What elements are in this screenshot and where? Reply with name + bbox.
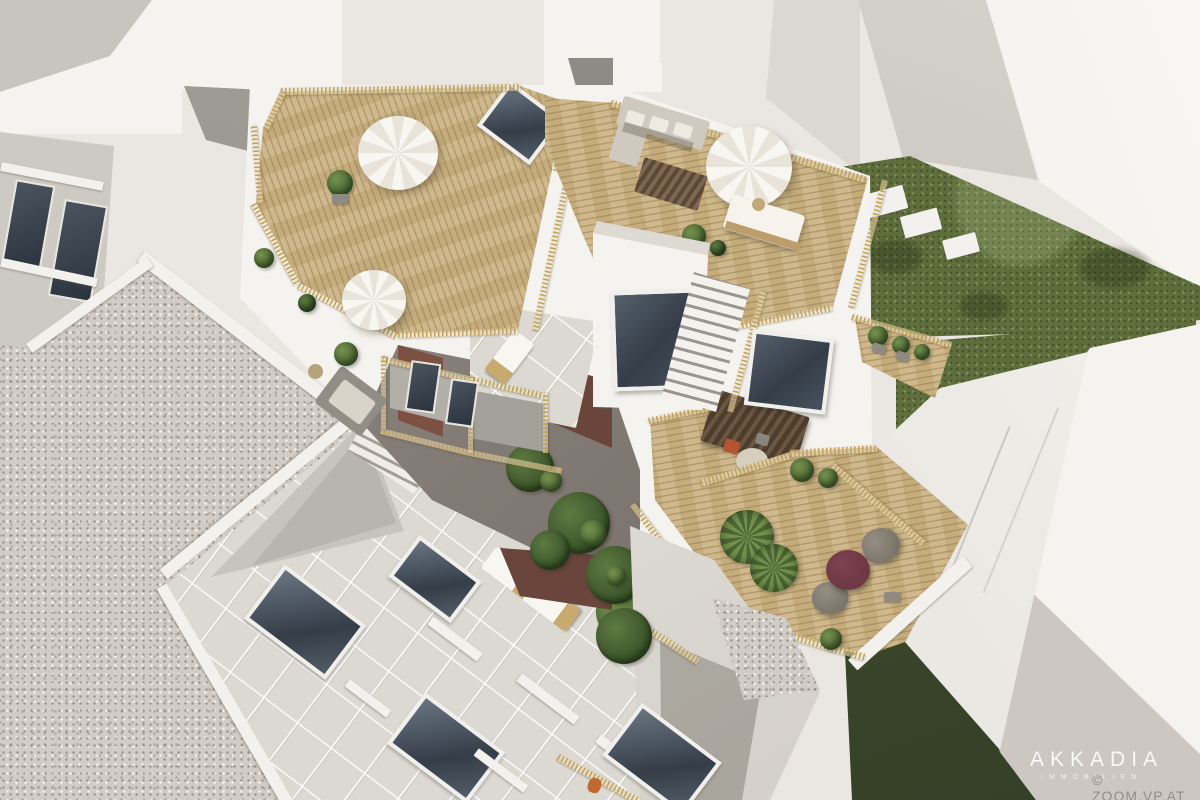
- palm-plant: [750, 544, 798, 592]
- courtyard-shrub: [580, 520, 606, 546]
- potted-plant: [790, 458, 814, 482]
- potted-plant: [818, 468, 838, 488]
- neighbor-building-north-b: [342, 0, 544, 62]
- neighbor-building-north-a: [182, 0, 342, 90]
- lawn-shadow-patch: [1080, 248, 1150, 288]
- lawn-shadow-patch: [960, 292, 1008, 320]
- potted-plant: [254, 248, 274, 268]
- watermark-credit: © ZOOM.VP.AT: [1092, 772, 1200, 800]
- side-table: [752, 198, 765, 211]
- watermark-brand: AKKADIA: [1030, 748, 1163, 772]
- balcony-railing-post: [381, 356, 386, 430]
- potted-plant: [710, 240, 726, 256]
- parasol: [358, 116, 438, 190]
- parasol: [706, 126, 792, 208]
- potted-plant: [820, 628, 842, 650]
- potted-plant: [327, 170, 353, 196]
- facade-window: [744, 329, 835, 414]
- courtyard-tree: [596, 608, 652, 664]
- potted-plant: [334, 342, 358, 366]
- courtyard-shrub: [606, 566, 626, 586]
- plant-pot: [332, 194, 348, 204]
- potted-plant: [298, 294, 316, 312]
- aerial-architectural-render: AKKADIA IMMOBILIEN © ZOOM.VP.AT: [0, 0, 1200, 800]
- parasol: [342, 270, 406, 330]
- side-table: [308, 364, 323, 379]
- plant-pot: [884, 592, 900, 602]
- potted-plant: [914, 344, 930, 360]
- round-table-burgundy: [826, 550, 870, 590]
- balcony-railing-post: [543, 393, 548, 453]
- lawn-shadow-patch: [868, 240, 922, 274]
- courtyard-tree: [530, 530, 570, 570]
